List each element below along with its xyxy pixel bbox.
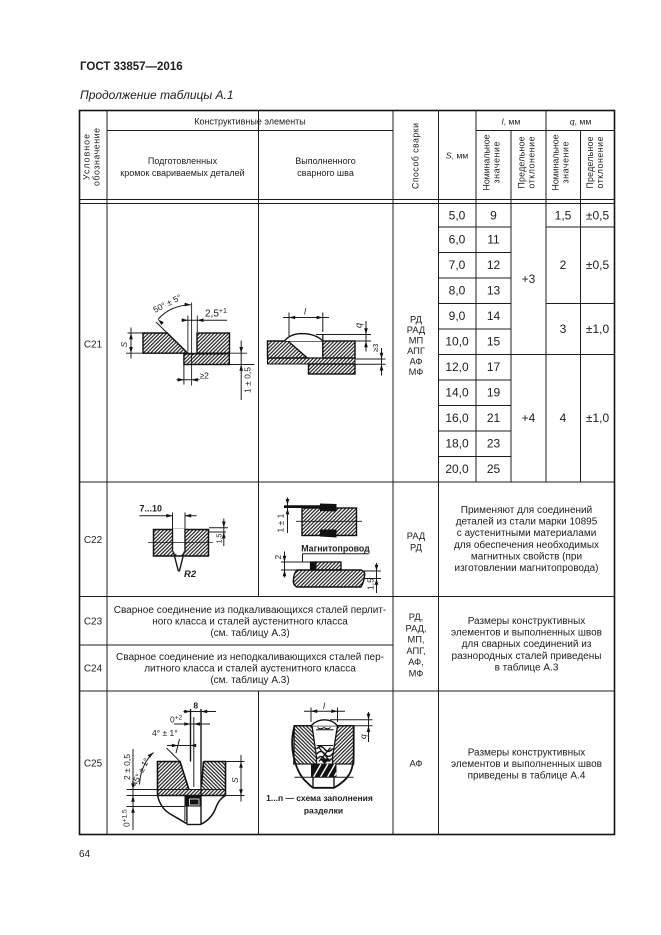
svg-text:4° ± 1°: 4° ± 1° [152,728,178,738]
svg-text:С24: С24 [84,664,103,675]
svg-text:магнитных свойств (при: магнитных свойств (при [471,551,582,562]
svg-text:14,0: 14,0 [445,386,469,400]
svg-text:Номинальное: Номинальное [551,134,561,190]
svg-text:12: 12 [487,258,501,272]
svg-text:2: 2 [560,258,567,272]
svg-text:±0,5: ±0,5 [586,209,610,223]
svg-text:Размеры конструктивных: Размеры конструктивных [468,748,586,759]
svg-text:S, мм: S, мм [446,151,469,161]
svg-text:+4: +4 [522,411,536,425]
svg-text:с аустенитными материалами: с аустенитными материалами [457,528,597,539]
svg-text:≥2: ≥2 [200,371,210,381]
svg-text:Подготовленных: Подготовленных [148,156,218,166]
svg-text:приведены в таблице А.4: приведены в таблице А.4 [468,770,586,782]
svg-text:18,0: 18,0 [445,437,469,451]
svg-text:разделки: разделки [304,806,343,816]
svg-text:64: 64 [79,849,91,860]
svg-text:РД: РД [410,542,423,552]
svg-text:С22: С22 [84,535,103,546]
svg-text:ного класса и сталей аустенитн: ного класса и сталей аустенитного класса [152,617,348,628]
svg-text:±1,0: ±1,0 [586,322,610,336]
svg-text:Применяют для соединений: Применяют для соединений [461,505,592,516]
svg-text:Магнитопровод: Магнитопровод [301,544,370,554]
svg-text:отклонение: отклонение [527,136,537,188]
svg-text:21: 21 [487,411,501,425]
svg-text:сварного шва: сварного шва [297,168,354,178]
svg-text:для сварных соединений из: для сварных соединений из [462,639,592,650]
svg-text:19: 19 [487,386,501,400]
svg-text:q: q [354,323,364,328]
svg-text:Продолжение таблицы А.1: Продолжение таблицы А.1 [80,88,234,102]
svg-text:значение: значение [492,141,502,183]
svg-text:деталей из стали марки 10895: деталей из стали марки 10895 [456,517,598,528]
svg-text:для обеспечения необходимых: для обеспечения необходимых [454,539,599,551]
svg-text:4: 4 [560,411,567,425]
svg-text:ГОСТ 33857—2016: ГОСТ 33857—2016 [80,61,183,73]
svg-text:Предельное: Предельное [517,136,527,188]
svg-text:МФ: МФ [409,669,424,679]
svg-text:МП: МП [409,336,423,346]
svg-text:12,0: 12,0 [445,360,469,374]
svg-text:МП,: МП, [407,635,424,645]
svg-text:10,0: 10,0 [445,335,469,349]
svg-text:изготовлении магнитопровода): изготовлении магнитопровода) [455,563,599,574]
svg-text:1,5: 1,5 [217,534,224,544]
svg-text:С25: С25 [84,759,103,770]
svg-text:q, мм: q, мм [570,117,592,127]
svg-text:11: 11 [487,233,500,247]
svg-text:в таблице А.3: в таблице А.3 [495,661,559,673]
svg-text:S: S [230,777,240,783]
svg-text:Выполненного: Выполненного [295,156,355,166]
svg-text:7,0: 7,0 [449,258,466,272]
svg-text:значение: значение [561,141,571,183]
svg-text:МФ: МФ [409,367,424,377]
svg-text:13: 13 [487,284,501,298]
svg-text:16,0: 16,0 [445,411,469,425]
svg-text:(см. таблицу А.3): (см. таблицу А.3) [210,627,289,639]
svg-text:элементов и выполненных швов: элементов и выполненных швов [451,628,602,639]
svg-text:2 ± 0,5: 2 ± 0,5 [122,754,132,780]
svg-text:S: S [119,342,129,348]
svg-text:разнородных сталей приведены: разнородных сталей приведены [452,651,602,662]
svg-text:Сварное соединение из неподкал: Сварное соединение из неподкаливающихся … [116,652,384,663]
svg-text:1,5: 1,5 [366,578,376,590]
svg-text:РД,: РД, [409,612,423,622]
svg-text:1,5: 1,5 [555,209,572,223]
svg-text:РАД,: РАД, [406,623,427,633]
svg-text:R2: R2 [184,569,197,580]
svg-text:С23: С23 [84,617,103,628]
svg-text:РД: РД [410,315,423,325]
svg-text:≥3: ≥3 [371,344,380,352]
svg-text:(см. таблицу А.3): (см. таблицу А.3) [210,674,289,686]
svg-text:АФ: АФ [410,759,423,769]
svg-text:АПГ: АПГ [407,346,425,356]
svg-text:литного класса и сталей аустен: литного класса и сталей аустенитного кла… [144,664,356,675]
svg-text:l, мм: l, мм [502,117,521,127]
svg-text:9: 9 [490,209,497,223]
svg-text:q: q [358,734,368,739]
svg-text:8,0: 8,0 [449,284,466,298]
svg-text:отклонение: отклонение [595,136,605,188]
svg-text:Предельное: Предельное [585,136,595,188]
svg-text:±0,5: ±0,5 [586,258,610,272]
svg-text:1 ± 1: 1 ± 1 [276,513,286,532]
svg-text:14: 14 [487,309,501,323]
svg-text:АФ,: АФ, [408,657,424,667]
svg-text:Условное: Условное [82,134,92,180]
svg-text:+3: +3 [522,272,536,286]
svg-text:Размеры конструктивных: Размеры конструктивных [468,616,586,627]
svg-text:1 ± 0,5: 1 ± 0,5 [243,367,253,393]
svg-text:Номинальное: Номинальное [482,134,492,190]
svg-text:элементов и выполненных швов: элементов и выполненных швов [451,759,602,770]
svg-text:АФ: АФ [410,357,423,367]
svg-text:С21: С21 [84,340,103,351]
svg-text:Сварное соединение из подкалив: Сварное соединение из подкаливающихся ст… [114,605,387,616]
svg-text:25: 25 [487,462,501,476]
svg-text:обозначение: обозначение [92,128,102,186]
svg-text:кромок свариваемых деталей: кромок свариваемых деталей [120,168,244,178]
svg-text:6,0: 6,0 [449,233,466,247]
svg-text:1...п — схема заполнения: 1...п — схема заполнения [266,793,373,803]
svg-text:Способ сварки: Способ сварки [411,123,421,189]
svg-text:8: 8 [193,701,198,711]
svg-text:3: 3 [560,322,567,336]
svg-text:РАД: РАД [407,325,426,335]
svg-text:20,0: 20,0 [445,462,469,476]
svg-text:РАД: РАД [407,531,426,541]
svg-text:17: 17 [487,360,501,374]
svg-text:15: 15 [487,335,501,349]
svg-text:5,0: 5,0 [449,209,466,223]
svg-text:9,0: 9,0 [449,309,466,323]
svg-text:Конструктивные элементы: Конструктивные элементы [194,117,306,127]
svg-text:АПГ,: АПГ, [406,646,425,656]
svg-text:7...10: 7...10 [140,504,163,514]
svg-text:2: 2 [273,555,283,560]
svg-text:±1,0: ±1,0 [586,411,610,425]
svg-text:23: 23 [487,437,501,451]
